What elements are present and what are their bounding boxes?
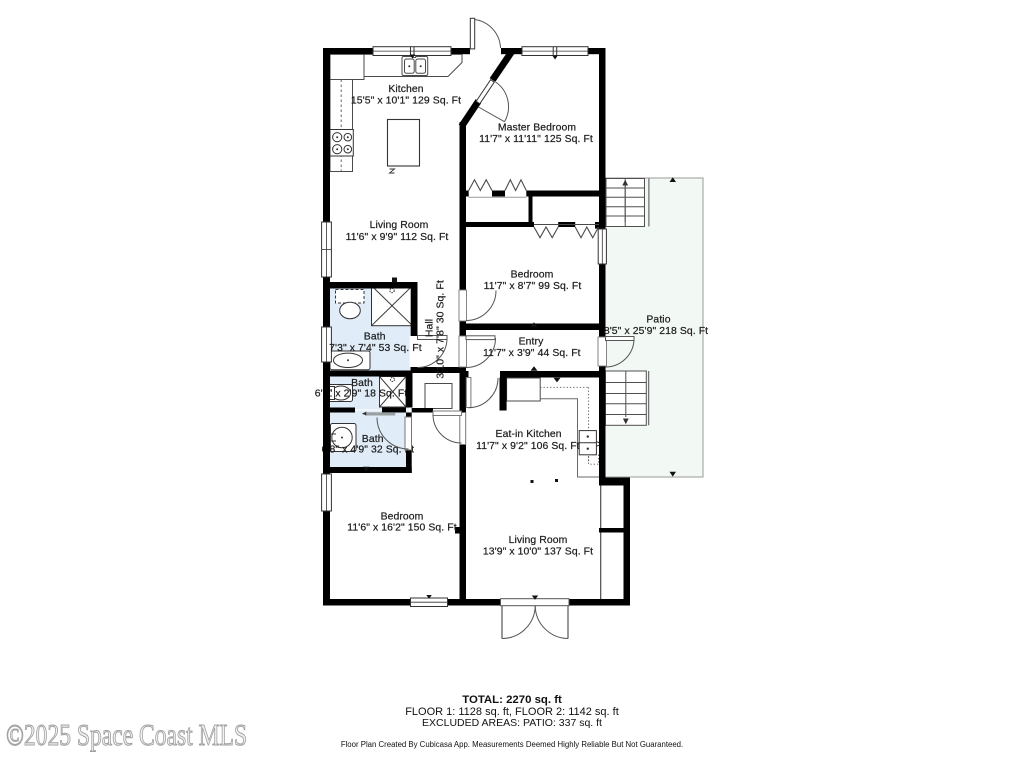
svg-text:15'5" x 10'1" 129 Sq. Ft: 15'5" x 10'1" 129 Sq. Ft [351, 96, 461, 107]
svg-text:13'9" x 10'0" 137 Sq. Ft: 13'9" x 10'0" 137 Sq. Ft [483, 547, 593, 558]
svg-text:Living Room: Living Room [509, 535, 568, 546]
svg-text:Kitchen: Kitchen [388, 84, 423, 95]
svg-text:11'6" x 9'9" 112 Sq. Ft: 11'6" x 9'9" 112 Sq. Ft [346, 232, 449, 243]
svg-text:7'3" x 7'4" 53 Sq. Ft: 7'3" x 7'4" 53 Sq. Ft [329, 343, 422, 354]
svg-text:11'6" x 16'2" 150 Sq. Ft: 11'6" x 16'2" 150 Sq. Ft [347, 523, 456, 534]
svg-text:Living Room: Living Room [370, 220, 429, 231]
svg-text:Bath: Bath [351, 378, 373, 389]
svg-text:Bath: Bath [364, 332, 386, 343]
svg-text:11'7" x 9'2" 106 Sq. Ft: 11'7" x 9'2" 106 Sq. Ft [476, 441, 580, 452]
svg-text:11'7" x 3'9" 44 Sq. Ft: 11'7" x 3'9" 44 Sq. Ft [483, 348, 581, 359]
svg-text:Patio: Patio [646, 315, 670, 326]
svg-text:6'8" x 4'9" 32 Sq. Ft: 6'8" x 4'9" 32 Sq. Ft [322, 445, 415, 456]
svg-text:Eat-in Kitchen: Eat-in Kitchen [496, 429, 562, 440]
svg-text:Bedroom: Bedroom [381, 512, 424, 523]
svg-text:Bath: Bath [362, 434, 384, 445]
svg-text:Master Bedroom: Master Bedroom [498, 123, 576, 134]
svg-text:Entry: Entry [519, 337, 544, 348]
svg-text:Hall: Hall [425, 319, 436, 337]
svg-text:11'7" x 8'7" 99 Sq. Ft: 11'7" x 8'7" 99 Sq. Ft [484, 281, 582, 292]
svg-text:8'5" x 25'9" 218 Sq. Ft: 8'5" x 25'9" 218 Sq. Ft [604, 326, 708, 337]
svg-text:11'7" x 11'11" 125 Sq. Ft: 11'7" x 11'11" 125 Sq. Ft [479, 134, 593, 145]
svg-text:3'10" x 7'8" 30 Sq. Ft: 3'10" x 7'8" 30 Sq. Ft [436, 280, 447, 378]
svg-text:Bedroom: Bedroom [511, 270, 554, 281]
